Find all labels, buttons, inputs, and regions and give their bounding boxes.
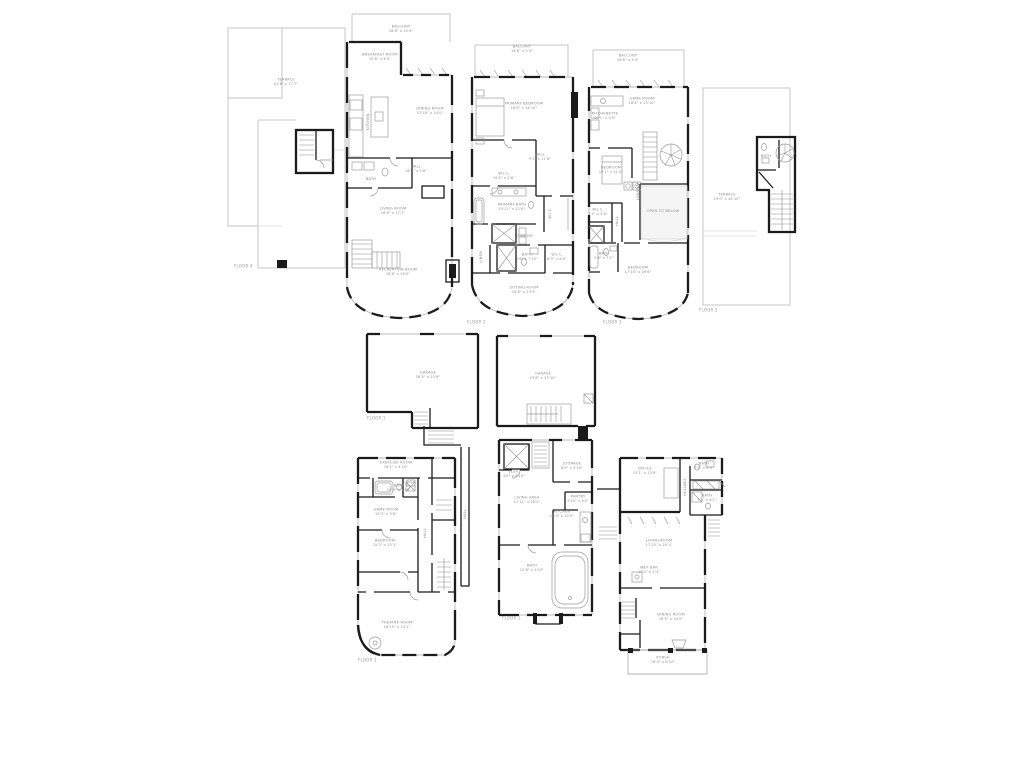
room-label-exercise-room: EXERCISE ROOM16'1" x 4'10" [380, 460, 412, 469]
room-label-breakfast-room: BREAKFAST ROOM10'8" x 8'0" [362, 52, 398, 61]
room-label-bath: BATH7'1" x 6'1" [697, 493, 717, 502]
room-label-bath: BATH7'0" x 6'0" [694, 461, 714, 470]
fireplace [672, 640, 686, 648]
room-label-hall: HALL9'2" x 11'8" [529, 152, 551, 161]
room-label-porch: PORCH16'0" x 6'10" [651, 655, 675, 664]
room-label-hall: HALL [423, 528, 428, 538]
room-label-hall: HALL [463, 509, 468, 519]
room-label-kitchen: KITCHEN [366, 114, 371, 131]
room-label-storage: STORAGE8'0" x 4'10" [561, 461, 583, 470]
floor-label-4: FLOOR 4 [234, 264, 253, 269]
floor-label-5: FLOOR 5 [699, 308, 718, 313]
room-label-sitting-room: SITTING ROOM16'8" x 13'0" [510, 285, 539, 294]
floor-label-3: FLOOR 3 [603, 320, 622, 325]
room-label-garage: GARAGE26'5" x 23'8" [416, 370, 440, 379]
roof-stair-bulkhead [296, 130, 333, 173]
floor-label-2: FLOOR 2 [467, 320, 486, 325]
room-label-bath: BATH10'1" x 5'10" [387, 483, 411, 492]
room-label-elevator: ELEV.4'0" x 4'10" [503, 469, 525, 478]
room-label-bath: BATH12'8" x 13'0" [520, 563, 544, 572]
floor-label-1: FLOOR 1 [358, 658, 377, 663]
room-label-laundry: LAUNDRY [515, 234, 533, 239]
floor-plan-drawing [0, 0, 1023, 767]
stairs [643, 132, 657, 180]
room-label-terrace: TERRACE19'0" x 44'10" [714, 192, 741, 201]
elevator-shaft-icon [492, 224, 516, 271]
stairs [621, 598, 636, 618]
room-label-linen: LINEN [479, 251, 484, 263]
column-icon [369, 637, 381, 649]
stairs [532, 442, 549, 468]
desk [664, 468, 678, 498]
room-label-wic: W.I.C. [548, 207, 553, 218]
room-label-balcony: BALCONY16'8" x 5'4" [617, 53, 639, 62]
room-label-pantry: PANTRY3'10" x 6'0" [567, 494, 589, 503]
stairs [414, 408, 430, 428]
plan-primary-floor [472, 45, 578, 316]
room-label-office: OFFICE13'1" x 13'8" [633, 466, 657, 475]
room-label-wic: W.I.C.10'2" x 2'8" [493, 171, 515, 180]
elevator-shaft-icon [589, 226, 604, 243]
mechanical-hatch [693, 481, 725, 489]
room-label-bedroom: BEDROOM10'1" x 11'0" [599, 165, 623, 174]
spiral-stair-icon [660, 144, 682, 166]
stairs [437, 558, 451, 590]
plan-guest-east [597, 458, 725, 674]
room-label-laundry: LAUNDRY [636, 182, 641, 200]
room-label-primary-bath: PRIMARY BATH10'11" x 11'6" [498, 202, 527, 211]
floor-label-1: FLOOR 1 [502, 616, 521, 621]
room-label-hallway: HALLWAY [683, 478, 688, 496]
room-label-garage: GARAGE19'8" x 23'10" [530, 371, 557, 380]
room-label-terrace: TERRACE21'6" x 17'7" [274, 77, 298, 86]
room-label-recreation-room: RECREATION ROOM16'8" x 19'0" [379, 267, 417, 276]
room-label-bedroom: BEDROOM17'10" x 16'6" [625, 265, 652, 274]
room-label-balcony: BALCONY16'8" x 10'4" [389, 24, 413, 33]
stairs [352, 240, 400, 268]
floor-label-1: FLOOR 1 [367, 416, 386, 421]
room-label-bath: BATH [366, 177, 376, 182]
room-label-wet-bar: WET BAR10'0" x 2'1" [638, 565, 660, 574]
powder-bath-fixtures [352, 162, 388, 176]
plan-roof-terrace [228, 28, 345, 268]
floor-plan-sheet: TERRACE21'6" x 17'7" FLOOR 4 BALCONY16'8… [0, 0, 1023, 767]
room-label-game-room: GAME ROOM16'8" x 13'10" [629, 96, 656, 105]
room-label-bath: BATH [761, 154, 771, 159]
room-label-bath: BATH5'6" x 7'1" [594, 251, 614, 260]
stairs [527, 404, 571, 424]
room-label-wic: W.I.C.3'1" x 5'0" [588, 207, 608, 216]
room-label-bath: BATH5'6" x 7'10" [516, 252, 538, 261]
room-label-hall: HALL [615, 216, 620, 226]
room-label-bedroom: BEDROOM15'3" x 10'1" [373, 538, 397, 547]
room-label-dining-room: DINING ROOM16'0" x 14'0" [657, 612, 684, 621]
room-label-primary-bedroom: PRIMARY BEDROOM16'8" x 14'10" [505, 101, 543, 110]
room-label-open-to-below: OPEN TO BELOW [647, 209, 680, 214]
room-label-hall: HALL16'0" x 4'6" [405, 164, 427, 173]
room-label-living-area: LIVING AREA11'11" x 18'0" [514, 495, 541, 504]
room-label-dining-room: DINING ROOM13'10" x 14'0" [416, 106, 443, 115]
room-label-balcony: BALCONY16'8" x 5'4" [511, 44, 533, 53]
room-label-theatre-room: THEATRE ROOM16'10" x 14'1" [382, 620, 413, 629]
room-label-living-room: LIVING ROOM17'10" x 20'1" [646, 538, 673, 547]
bathtub-icon [552, 552, 588, 608]
elevator-shaft-icon [504, 444, 529, 469]
bed [476, 90, 504, 144]
room-label-game-room: GAME ROOM15'3" x 9'8" [374, 507, 399, 516]
room-label-living-room: LIVING ROOM16'8" x 17'7" [380, 206, 406, 215]
room-label-kitchenette: KITCHENETTE10'1" x 3'0" [592, 111, 618, 120]
room-label-wic: W.I.C.8'0" x 6'0" [547, 252, 567, 261]
kitchen-fixtures [580, 512, 591, 542]
room-label-kitchen: KITCHEN10'0" x 10'0" [550, 509, 574, 518]
